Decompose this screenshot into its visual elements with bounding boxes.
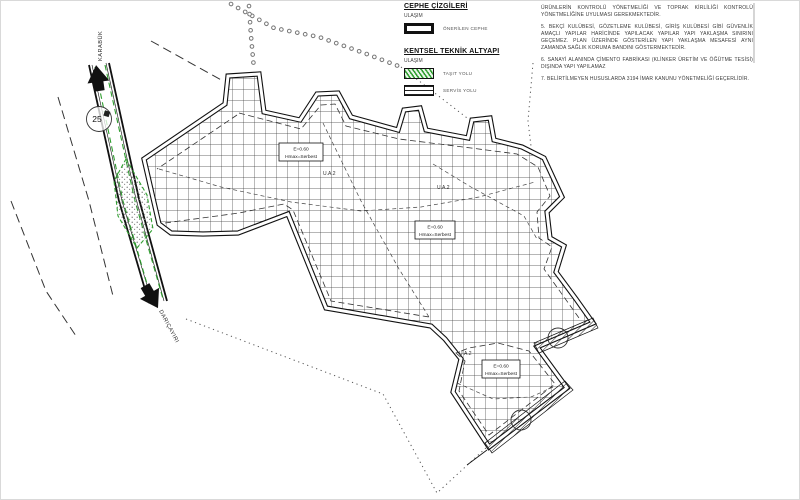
svg-text:Hmax=Serbest: Hmax=Serbest: [485, 371, 518, 377]
legend-item-tasit-yolu: TAŞIT YOLU: [404, 68, 542, 79]
onerilen-cephe-label: ÖNERİLEN CEPHE: [443, 26, 488, 31]
road-destination-top: KARABÜK: [97, 31, 104, 61]
main-parcel: [144, 74, 593, 447]
tasit-yolu-swatch: [404, 68, 434, 79]
note-paragraph: 7. BELİRTİLMEYEN HUSUSLARDA 3194 İMAR KA…: [541, 76, 753, 83]
parcel-grid-fill: [144, 74, 593, 447]
note-paragraph: 5. BEKÇİ KULÜBESİ, GÖZETLEME KULÜBESİ, G…: [541, 24, 753, 52]
zone-label-2: U.A.2: [437, 185, 450, 191]
svg-text:Hmax=Serbest: Hmax=Serbest: [419, 232, 452, 238]
svg-text:E=0.60: E=0.60: [427, 225, 443, 231]
onerilen-cephe-swatch: [404, 23, 434, 34]
road-destination-bottom: DARIÇAYIRI: [157, 309, 179, 344]
plan-notes: ÜRÜNLERİN KONTROLÜ YÖNETMELİĞİ VE TOPRAK…: [541, 5, 753, 88]
svg-text:E=0.60: E=0.60: [493, 364, 509, 370]
density-label-box-1: E=0.60 Hmax=Serbest: [279, 143, 323, 161]
road-width-label: 25: [92, 114, 102, 124]
legend-item-onerilen-cephe: ÖNERİLEN CEPHE: [404, 23, 542, 34]
tasit-yolu-label: TAŞIT YOLU: [443, 71, 472, 76]
density-label-box-2: E=0.60 Hmax=Serbest: [415, 221, 455, 239]
legend-section-cephe-title: CEPHE ÇİZGİLERİ: [404, 3, 542, 10]
svg-text:E=0.60: E=0.60: [293, 147, 309, 153]
zone-label-3: U.A.2: [459, 351, 472, 357]
svg-text:Hmax=Serbest: Hmax=Serbest: [285, 154, 318, 160]
plan-sheet: 25 KARABÜK DARIÇAYIRI: [0, 0, 800, 500]
density-label-box-3: E=0.60 Hmax=Serbest: [482, 360, 520, 378]
legend-section-altyapi-title: KENTSEL TEKNİK ALTYAPI: [404, 48, 542, 55]
note-paragraph: ÜRÜNLERİN KONTROLÜ YÖNETMELİĞİ VE TOPRAK…: [541, 5, 753, 19]
servis-yolu-label: SERVİS YOLU: [443, 88, 477, 93]
legend: CEPHE ÇİZGİLERİ ULAŞIM ÖNERİLEN CEPHE KE…: [404, 3, 542, 102]
zone-label-1: U.A.2: [323, 171, 336, 177]
legend-item-servis-yolu: SERVİS YOLU: [404, 85, 542, 96]
cadastral-circle-chains: [231, 4, 401, 69]
legend-altyapi-subtitle: ULAŞIM: [404, 58, 542, 64]
note-paragraph: 6. SANAYİ ALANINDA ÇİMENTO FABRİKASI (KL…: [541, 57, 753, 71]
servis-yolu-swatch: [404, 85, 434, 96]
legend-cephe-subtitle: ULAŞIM: [404, 13, 542, 19]
